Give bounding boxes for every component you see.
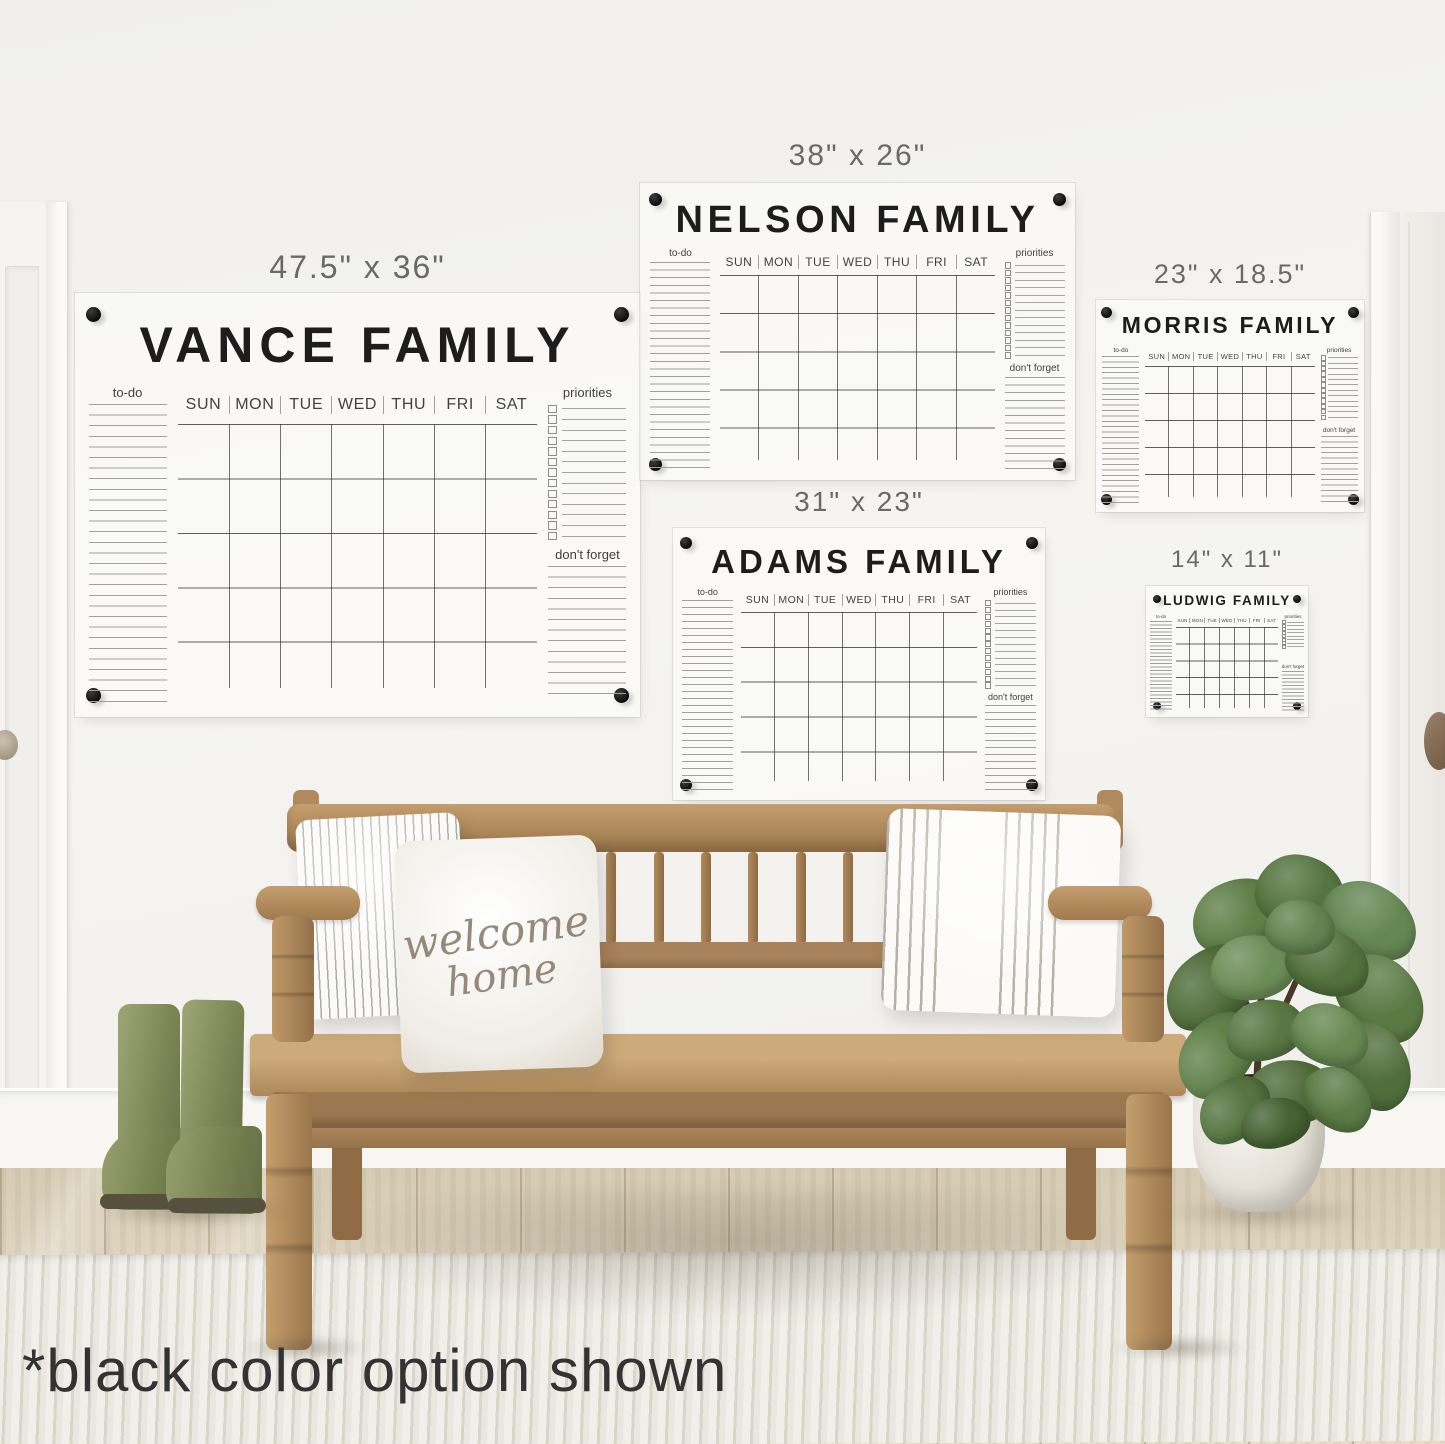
caption-text: *black color option shown	[22, 1336, 727, 1405]
leaf	[1265, 900, 1335, 955]
plant-leaves	[1140, 840, 1440, 1260]
boot-sole	[168, 1198, 266, 1213]
fiddle-leaf-plant	[1140, 840, 1440, 1260]
product-photo-scene: 47.5" x 36" 38" x 26" 23" x 18.5" 31" x …	[0, 0, 1445, 1444]
